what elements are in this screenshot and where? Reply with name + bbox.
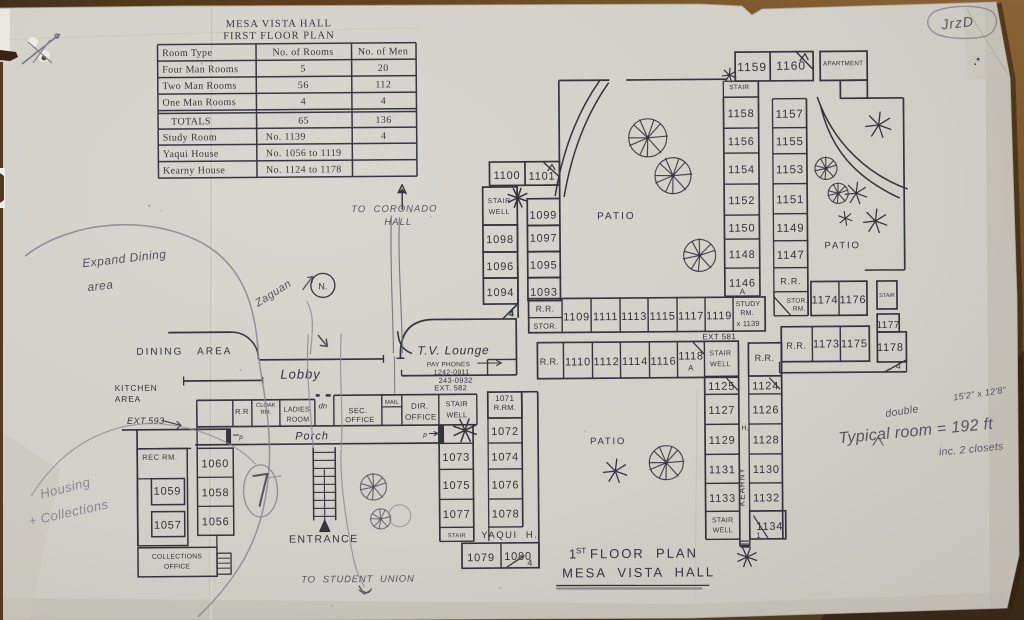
svg-text:1160: 1160 [776, 59, 806, 73]
svg-text:136: 136 [375, 115, 391, 126]
svg-text:1077: 1077 [443, 509, 471, 521]
svg-text:STAIR: STAIR [448, 533, 467, 539]
svg-text:STOR.: STOR. [533, 322, 557, 331]
svg-text:ST: ST [576, 546, 586, 555]
svg-text:1118: 1118 [678, 350, 703, 362]
svg-text:REC RM.: REC RM. [142, 453, 177, 462]
svg-text:1112: 1112 [593, 356, 619, 368]
svg-text:SEC.: SEC. [348, 406, 367, 415]
svg-text:MESA VISTA HALL: MESA VISTA HALL [226, 18, 332, 30]
svg-text:Lobby: Lobby [280, 366, 321, 381]
svg-text:56: 56 [298, 80, 309, 91]
svg-text:FLOOR PLAN: FLOOR PLAN [590, 545, 698, 561]
svg-text:T.V. Lounge: T.V. Lounge [417, 343, 489, 358]
svg-text:1101: 1101 [529, 171, 556, 183]
svg-text:4: 4 [381, 96, 386, 107]
svg-text:1119: 1119 [706, 310, 732, 322]
svg-text:1078: 1078 [492, 508, 520, 520]
svg-text:1071: 1071 [495, 394, 514, 403]
svg-text:PATIO: PATIO [597, 211, 636, 222]
svg-text:R.R.: R.R. [780, 276, 801, 286]
svg-text:1178: 1178 [877, 342, 904, 354]
svg-text:4: 4 [381, 131, 386, 142]
svg-text:PATIO: PATIO [824, 240, 860, 251]
svg-text:EXT. 582: EXT. 582 [434, 383, 467, 392]
svg-text:1100: 1100 [494, 170, 521, 182]
svg-text:STAIR: STAIR [712, 517, 734, 524]
svg-text:STAIR: STAIR [446, 399, 468, 408]
svg-text:1130: 1130 [753, 464, 780, 476]
svg-text:STAIR: STAIR [729, 84, 749, 91]
svg-text:TOTALS: TOTALS [163, 116, 211, 127]
svg-text:112: 112 [375, 79, 391, 90]
svg-text:Room Type: Room Type [162, 48, 212, 59]
svg-text:4: 4 [509, 308, 514, 318]
svg-text:1147: 1147 [777, 250, 805, 262]
svg-text:1098: 1098 [486, 234, 514, 246]
svg-text:PATIO: PATIO [590, 436, 626, 447]
svg-text:1175: 1175 [841, 338, 868, 350]
svg-text:1057: 1057 [154, 520, 182, 532]
svg-text:TO STUDENT UNION: TO STUDENT UNION [301, 574, 415, 586]
svg-text:1093: 1093 [530, 287, 558, 299]
svg-text:Yaqui House: Yaqui House [163, 149, 219, 160]
svg-text:R.RM.: R.RM. [494, 403, 516, 412]
svg-text:1150: 1150 [728, 222, 755, 234]
svg-text:1074: 1074 [491, 451, 519, 463]
svg-text:1151: 1151 [776, 194, 804, 206]
svg-text:No. 1056 to 1119: No. 1056 to 1119 [266, 148, 342, 160]
svg-text:No. of Rooms: No. of Rooms [272, 47, 333, 58]
svg-text:1097: 1097 [530, 233, 558, 245]
svg-text:1111: 1111 [593, 311, 618, 323]
svg-text:A: A [740, 287, 746, 296]
svg-text:1096: 1096 [486, 261, 514, 273]
svg-text:1133: 1133 [709, 493, 736, 505]
svg-text:R.R.: R.R. [786, 341, 806, 351]
svg-text:1126: 1126 [752, 404, 779, 416]
svg-text:4: 4 [301, 97, 306, 108]
svg-text:x 1139: x 1139 [737, 319, 760, 328]
svg-text:1158: 1158 [728, 108, 755, 120]
svg-text:WELL: WELL [446, 410, 467, 419]
svg-text:OFFICE: OFFICE [164, 563, 190, 570]
svg-text:1156: 1156 [728, 136, 755, 148]
svg-text:STAIR: STAIR [488, 198, 511, 205]
svg-text:OFFICE: OFFICE [405, 413, 437, 422]
svg-text:4: 4 [896, 361, 902, 371]
svg-text:1114: 1114 [622, 356, 648, 368]
svg-text:1152: 1152 [728, 195, 755, 207]
svg-text:4: 4 [527, 558, 533, 568]
svg-text:R.R: R.R [235, 407, 249, 416]
svg-text:1116: 1116 [650, 356, 676, 368]
svg-text:1059: 1059 [154, 486, 182, 498]
svg-text:One Man Rooms: One Man Rooms [162, 97, 236, 109]
svg-text:STOR.: STOR. [787, 298, 808, 305]
svg-text:1157: 1157 [776, 109, 804, 121]
svg-text:1127: 1127 [708, 405, 735, 417]
svg-text:1117: 1117 [678, 310, 704, 322]
svg-text:1099: 1099 [529, 210, 557, 222]
svg-text:AREA: AREA [115, 394, 141, 404]
svg-text:STUDY: STUDY [736, 301, 761, 308]
svg-text:1: 1 [756, 531, 761, 540]
svg-text:MAIL: MAIL [385, 400, 399, 406]
svg-text:1079: 1079 [467, 552, 495, 564]
svg-text:1115: 1115 [650, 311, 676, 323]
svg-text:1060: 1060 [201, 458, 229, 470]
svg-text:KITCHEN: KITCHEN [115, 383, 158, 393]
svg-text:1109: 1109 [563, 311, 590, 323]
svg-text:Study Room: Study Room [163, 132, 217, 143]
svg-text:1131: 1131 [709, 464, 736, 476]
svg-text:Kearny House: Kearny House [163, 165, 226, 176]
svg-text:R.R.: R.R. [536, 304, 555, 314]
svg-text:FIRST FLOOR PLAN: FIRST FLOOR PLAN [223, 30, 335, 42]
svg-text:1110: 1110 [565, 356, 591, 368]
svg-text:A: A [688, 363, 694, 372]
svg-text:No. 1139: No. 1139 [266, 132, 306, 143]
svg-text:H.: H. [741, 425, 748, 432]
svg-text:1075: 1075 [443, 480, 471, 492]
svg-text:WELL: WELL [489, 209, 511, 216]
svg-text:RM.: RM. [740, 310, 753, 317]
svg-text:1113: 1113 [621, 311, 647, 323]
svg-text:ROOM: ROOM [287, 417, 310, 424]
svg-text:1129: 1129 [709, 435, 736, 447]
svg-text:ENTRANCE: ENTRANCE [289, 533, 359, 546]
svg-text:R.R.: R.R. [540, 357, 560, 367]
svg-text:APARTMENT: APARTMENT [823, 60, 863, 67]
svg-text:1148: 1148 [729, 249, 756, 261]
svg-text:65: 65 [298, 115, 309, 126]
svg-text:1124: 1124 [752, 380, 779, 392]
svg-text:YAQUI H.: YAQUI H. [481, 530, 538, 541]
svg-text:1154: 1154 [728, 164, 755, 176]
svg-text:STAIR: STAIR [879, 293, 895, 299]
svg-text:dn: dn [319, 401, 327, 410]
svg-text:HALL: HALL [384, 217, 412, 228]
svg-text:1056: 1056 [202, 516, 230, 528]
svg-text:1155: 1155 [776, 136, 804, 148]
svg-text:RM.: RM. [793, 306, 806, 313]
svg-text:5: 5 [300, 64, 305, 75]
svg-text:STAIR: STAIR [709, 350, 731, 357]
svg-text:1153: 1153 [776, 164, 804, 176]
svg-text:Two Man Rooms: Two Man Rooms [162, 81, 237, 93]
svg-text:WELL: WELL [713, 527, 733, 534]
svg-text:TO CORONADO: TO CORONADO [351, 203, 437, 215]
svg-text:1076: 1076 [492, 479, 520, 491]
svg-text:No. 1124 to 1178: No. 1124 to 1178 [266, 164, 342, 176]
svg-text:DINING AREA: DINING AREA [136, 346, 232, 358]
svg-text:R.R.: R.R. [755, 353, 775, 363]
svg-text:p: p [422, 432, 427, 439]
svg-text:EXT 581: EXT 581 [702, 332, 736, 341]
svg-text:1176: 1176 [840, 294, 867, 306]
svg-text:DIR.: DIR. [411, 402, 429, 411]
svg-text:LADIES: LADIES [284, 406, 310, 413]
svg-text:MESA VISTA HALL: MESA VISTA HALL [562, 564, 715, 580]
svg-text:WELL: WELL [710, 361, 731, 368]
svg-text:1058: 1058 [202, 487, 230, 499]
svg-text:1073: 1073 [442, 452, 470, 464]
svg-text:1128: 1128 [753, 434, 780, 446]
svg-text:20: 20 [378, 63, 389, 74]
svg-text:1149: 1149 [776, 223, 804, 235]
svg-text:OFFICE: OFFICE [345, 415, 374, 424]
svg-text:area: area [87, 277, 114, 294]
svg-text:1177: 1177 [876, 320, 900, 331]
svg-text:1094: 1094 [487, 287, 515, 299]
svg-text:No. of Men: No. of Men [358, 46, 408, 57]
svg-text:KEARNY: KEARNY [737, 467, 746, 506]
svg-text:Four Man Rooms: Four Man Rooms [162, 64, 238, 76]
svg-text:N.: N. [318, 281, 327, 291]
svg-text:1072: 1072 [491, 426, 519, 438]
svg-text:1159: 1159 [737, 60, 767, 74]
svg-text:COLLECTIONS: COLLECTIONS [152, 553, 202, 560]
svg-text:1095: 1095 [530, 260, 558, 272]
svg-text:1132: 1132 [753, 492, 780, 504]
svg-text:PAY PHONES: PAY PHONES [427, 361, 471, 368]
svg-text:1173: 1173 [813, 338, 840, 350]
svg-text:1174: 1174 [812, 294, 839, 306]
